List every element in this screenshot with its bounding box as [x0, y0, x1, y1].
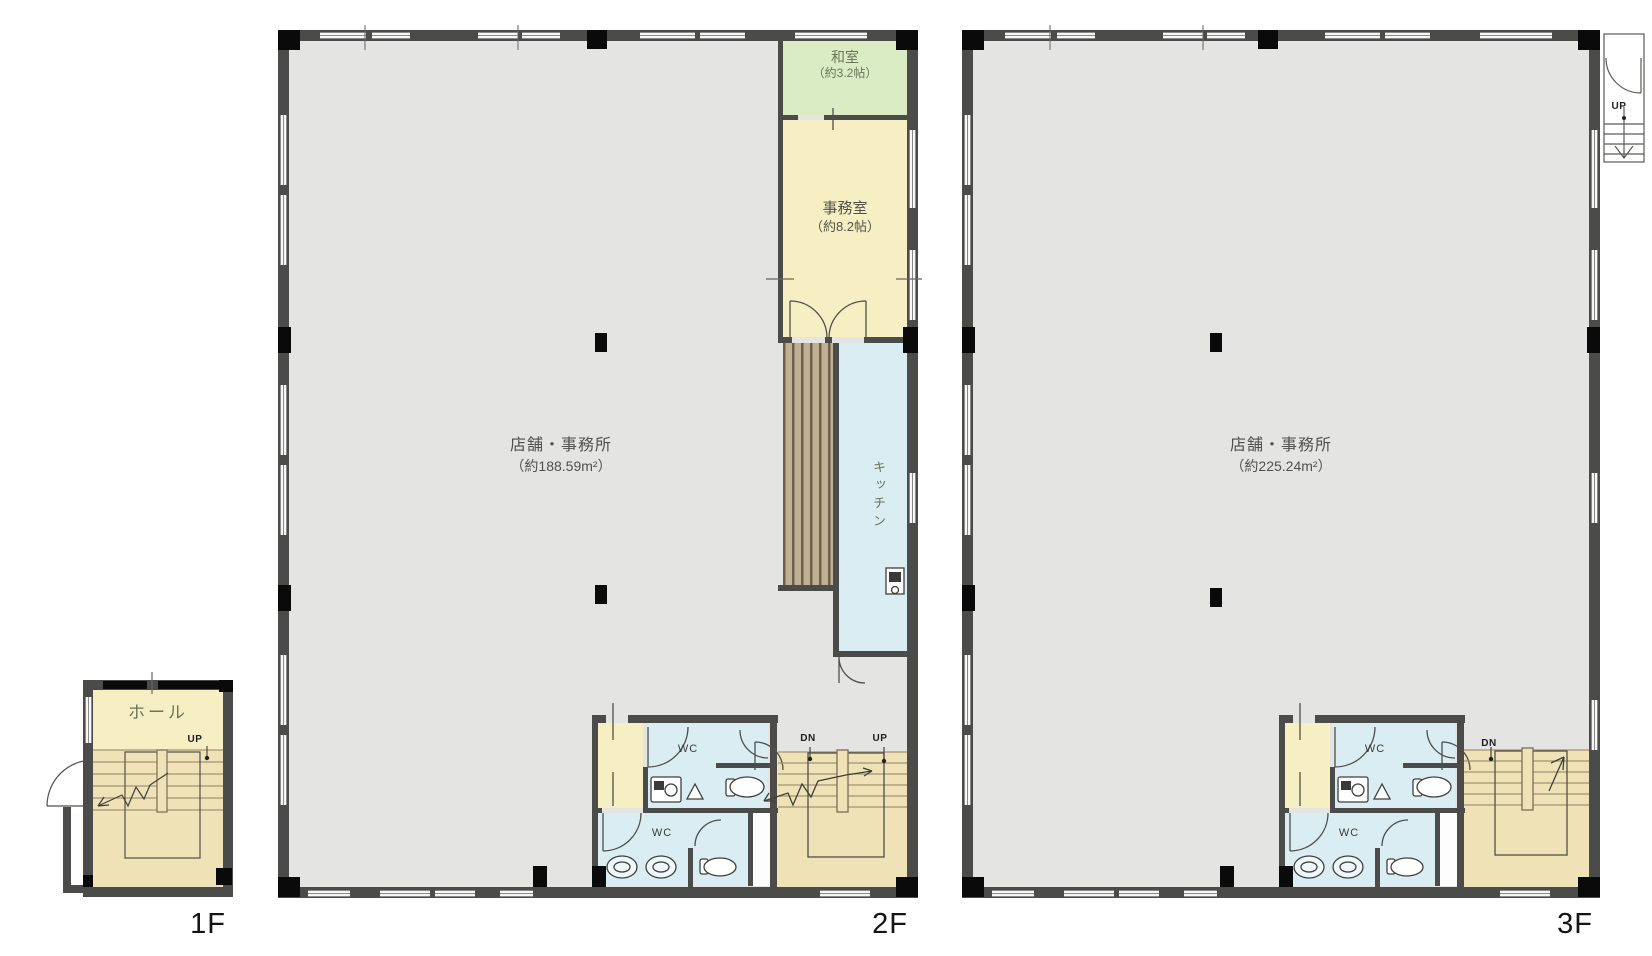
window-dark-segment [103, 681, 147, 689]
pillar [278, 327, 291, 353]
window-dark-segment [158, 681, 222, 689]
wall-wc-top [628, 715, 778, 723]
window-segment [280, 115, 287, 185]
external-stair-3f [1604, 34, 1644, 162]
washitsu-name: 和室 [783, 48, 907, 66]
wall-wc-divider [1330, 767, 1335, 808]
up-label-1f: UP [180, 733, 210, 746]
pillar [1578, 30, 1600, 50]
window-segment [1385, 32, 1430, 39]
pillar [278, 585, 291, 611]
window-segment [280, 735, 287, 805]
pillar [903, 327, 918, 353]
window-segment [640, 32, 695, 39]
pillar [962, 30, 984, 50]
pillar [1258, 30, 1278, 49]
wall-1f-right [223, 680, 233, 897]
office-label: 事務室 （約8.2帖） [783, 199, 907, 235]
shop-office-area-2f: （約188.59m²） [446, 457, 676, 475]
window-segment [1591, 250, 1598, 320]
shop-office-name-3f: 店舗・事務所 [1166, 436, 1396, 457]
floorplan-canvas: ホール UP 1F [0, 0, 1652, 956]
window-segment [909, 473, 916, 523]
pillar [278, 877, 300, 897]
window-segment [1119, 890, 1159, 897]
external-up-dot [1622, 116, 1626, 120]
pillar [1578, 877, 1600, 897]
window-segment [280, 385, 287, 455]
window-segment [992, 890, 1034, 897]
pillar [1220, 866, 1234, 887]
window-segment [1005, 32, 1051, 39]
dn-label-2f: DN [794, 732, 822, 745]
pillar [896, 877, 918, 897]
wc-anteroom-3f [1285, 723, 1330, 808]
window-segment [909, 250, 916, 320]
window-segment [308, 890, 350, 897]
stairs-area-3f [1464, 750, 1589, 887]
external-door-arc [1606, 58, 1641, 93]
external-stair-treads [1604, 124, 1644, 154]
wall-wc-right-lower [748, 813, 753, 886]
window-segment [964, 735, 971, 805]
washitsu-label: 和室 （約3.2帖） [783, 48, 907, 82]
pillar [962, 327, 975, 353]
wall-toilet-stall [716, 763, 772, 768]
window-segment [280, 195, 287, 265]
external-stair-arrow [1615, 146, 1633, 158]
corridor-strip-3f [1440, 813, 1457, 886]
window-segment [1057, 32, 1095, 39]
wall-kitchen-step [833, 585, 839, 657]
window-segment [435, 890, 475, 897]
shop-office-label-3f: 店舗・事務所 （約225.24m²） [1166, 436, 1396, 475]
pillar [278, 30, 300, 50]
wc-lower-label-3f: WC [1333, 826, 1365, 840]
wc-lower-room-3f [1285, 813, 1435, 886]
window-segment [280, 465, 287, 535]
window-segment [964, 465, 971, 535]
floor-title-1f: 1F [178, 906, 238, 944]
up-label-3f-external: UP [1605, 100, 1633, 113]
pillar [595, 333, 607, 352]
wall-wc-mid [643, 808, 778, 813]
window-segment [964, 655, 971, 725]
wall-kitchen-left [833, 343, 839, 585]
window-segment [1591, 473, 1598, 523]
up-label-2f: UP [866, 732, 894, 745]
window-segment [1064, 890, 1114, 897]
pillar [1210, 333, 1222, 352]
floor-title-3f: 3F [1545, 906, 1605, 944]
wc-anteroom-2f [598, 723, 643, 808]
porch-wall-left [63, 807, 71, 893]
wall-office-bottom [778, 337, 792, 343]
window-segment [909, 130, 916, 208]
wall-office-left [778, 41, 783, 343]
window-segment [1184, 890, 1217, 897]
dn-label-3f: DN [1475, 737, 1503, 750]
kitchen-label: キッチン [858, 426, 886, 566]
wall-office-bottom [864, 337, 907, 343]
wall-wc-top [1315, 715, 1465, 723]
wall-toilet-partition [688, 848, 693, 887]
wall-kitchen-bottom [833, 651, 907, 657]
window-segment [478, 32, 518, 39]
window-segment [85, 697, 92, 743]
window-segment [700, 32, 745, 39]
window-segment [1480, 32, 1552, 39]
window-segment [372, 32, 410, 39]
wall-wc-left [592, 715, 598, 813]
wall-office-bottom [825, 337, 832, 343]
wall-washitsu-bottom [824, 115, 907, 120]
wall-toilet-partition [1375, 848, 1380, 887]
pillar [1587, 327, 1600, 353]
window-segment [380, 890, 430, 897]
corridor-strip-2f [753, 813, 770, 886]
wall-wc-right-lower [1435, 813, 1440, 886]
wall-wc-block-right [1457, 715, 1464, 887]
pillar [1210, 588, 1222, 607]
window-segment [964, 385, 971, 455]
wc-upper-label-2f: WC [672, 742, 704, 756]
wall-wc-left [1279, 715, 1285, 813]
wall-wc-divider [643, 767, 648, 808]
shop-office-label-2f: 店舗・事務所 （約188.59m²） [446, 436, 676, 475]
pillar [83, 875, 93, 887]
pillar [587, 30, 607, 49]
window-segment [522, 32, 560, 39]
window-segment [1325, 32, 1380, 39]
window-segment [964, 195, 971, 265]
floor-title-2f: 2F [860, 906, 920, 944]
pillar [962, 585, 975, 611]
pillar [216, 868, 232, 885]
hall-label: ホール [93, 702, 223, 724]
stair-hatch-2f [783, 343, 833, 585]
window-segment [820, 890, 870, 897]
wc-lower-label-2f: WC [646, 826, 678, 840]
pillar [592, 866, 606, 887]
window-segment [1591, 130, 1598, 208]
window-segment [1207, 32, 1245, 39]
wall-toilet-stall [1403, 763, 1459, 768]
window-segment [964, 115, 971, 185]
wall-wc-block-right [770, 715, 777, 887]
window-segment [1591, 700, 1598, 750]
shop-office-name-2f: 店舗・事務所 [446, 436, 676, 457]
pillar [962, 877, 984, 897]
wall-washitsu-bottom [783, 115, 798, 120]
shop-office-area-3f: （約225.24m²） [1166, 457, 1396, 475]
pillar [896, 30, 918, 50]
office-name: 事務室 [783, 199, 907, 219]
washitsu-size: （約3.2帖） [783, 66, 907, 82]
wc-upper-label-3f: WC [1359, 742, 1391, 756]
wc-lower-room-2f [598, 813, 748, 886]
porch-interior [71, 814, 83, 885]
window-segment [320, 32, 366, 39]
window-segment [1500, 890, 1550, 897]
window-segment [1163, 32, 1203, 39]
pillar [1279, 866, 1293, 887]
stairs-area-1f [93, 750, 223, 887]
window-segment [280, 655, 287, 725]
wall-1f-bottom [83, 887, 233, 897]
pillar [595, 585, 607, 604]
pillar [533, 866, 547, 887]
wall-hatch-bottom [778, 585, 839, 591]
window-segment [795, 32, 867, 39]
window-segment [500, 890, 533, 897]
office-size: （約8.2帖） [783, 219, 907, 236]
wall-wc-mid [1330, 808, 1465, 813]
stairs-area-2f [778, 752, 907, 887]
